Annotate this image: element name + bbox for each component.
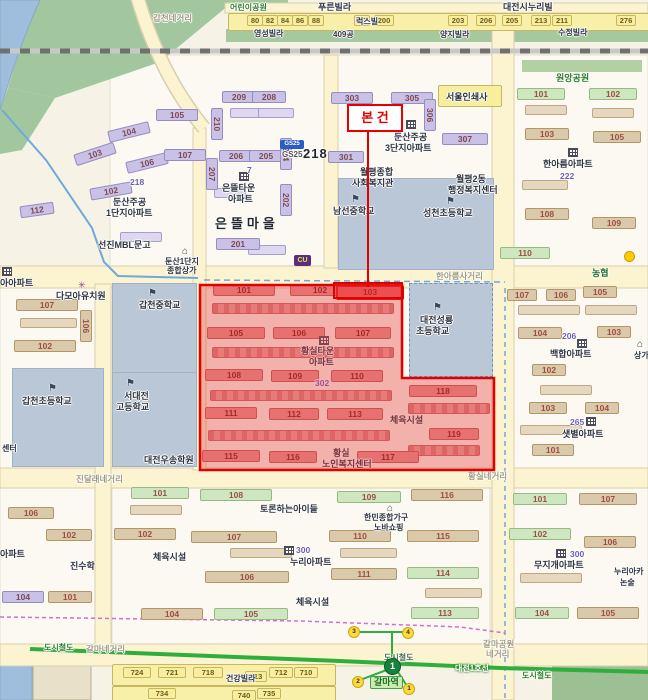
block: 104 xyxy=(141,608,203,620)
block: 112 xyxy=(269,408,319,420)
subway-exit-badge: 3 xyxy=(348,626,360,638)
building-bar xyxy=(258,108,294,118)
villa-label: 양지빌라 xyxy=(440,29,469,40)
subway-line1-badge: 1 xyxy=(384,658,401,675)
building-bar xyxy=(112,686,336,700)
lot-number: 86 xyxy=(292,15,308,26)
lot-number: 740 xyxy=(232,690,256,700)
block: 107 xyxy=(191,531,277,543)
cu-logo-icon: CU xyxy=(294,255,311,266)
block: 109 xyxy=(271,370,319,382)
poi-label: 논술 xyxy=(620,577,635,588)
block: 108 xyxy=(525,208,569,220)
shop-icon: ⌂ xyxy=(637,339,643,350)
block: 103 xyxy=(525,128,569,140)
block: 111 xyxy=(205,407,257,419)
villa-label: 영성빌라 xyxy=(254,28,283,39)
subject-block: 103 xyxy=(336,285,404,300)
park-label: 어린이공원 xyxy=(230,2,267,13)
block: 107 xyxy=(335,327,391,339)
block: 102 xyxy=(589,88,637,100)
map-canvas[interactable]: 어린이공원 푸른빌라 대전시누리빌 영성빌라 409공 럭스빌 양지빌라 수정빌… xyxy=(0,0,648,700)
block: 106 xyxy=(584,536,636,548)
block: 104 xyxy=(518,327,562,339)
school-flag-icon: ⚑ xyxy=(48,383,57,394)
poi-label: 대전우송학원 xyxy=(144,453,194,466)
block: 307 xyxy=(442,133,488,145)
villa-label: 푸른빌라 xyxy=(318,0,351,13)
block: 105 xyxy=(214,608,288,620)
block: 206 xyxy=(219,150,253,162)
block: 106 xyxy=(273,327,325,339)
block: 110 xyxy=(500,247,550,259)
block: 210 xyxy=(211,108,223,140)
lot-number: 265 xyxy=(570,417,584,427)
building-bar xyxy=(230,548,292,558)
block: 205 xyxy=(249,150,283,162)
block: 107 xyxy=(507,289,537,301)
poi-label: 선진MBL문고 xyxy=(98,238,151,251)
store-label: GS25 xyxy=(282,150,302,159)
building-bar xyxy=(130,505,182,515)
school-label: 갑천초등학교 xyxy=(22,394,72,407)
block: 114 xyxy=(407,567,479,579)
poi-label: 센터 xyxy=(2,443,17,454)
block: 118 xyxy=(409,385,477,397)
block: 107 xyxy=(579,493,637,505)
block: 202 xyxy=(280,184,292,216)
block: 102 xyxy=(46,529,92,541)
block: 102 xyxy=(114,528,176,540)
complex-name: 아아파트 xyxy=(0,276,33,289)
block: 105 xyxy=(577,607,639,619)
lot-label: 409공 xyxy=(333,29,354,40)
poi-label: 토론하는아이들 xyxy=(260,502,318,515)
poi-label: 서울인쇄사 xyxy=(446,90,487,103)
block: 113 xyxy=(327,408,383,420)
complex-name: 누리아파트 xyxy=(290,555,331,568)
building-bar xyxy=(518,305,580,315)
villa-label: 럭스빌 xyxy=(356,16,378,27)
block: 113 xyxy=(411,607,479,619)
road-name: 진달래네거리 xyxy=(76,473,123,485)
block: 109 xyxy=(337,491,401,503)
subway-line-name: 대전1호선 xyxy=(455,663,489,674)
lot-number: 7 xyxy=(247,165,252,175)
subject-marker: 본 건 xyxy=(347,104,403,132)
block: 303 xyxy=(331,92,373,104)
school-flag-icon: ⚑ xyxy=(126,378,135,389)
block: 101 xyxy=(48,591,92,603)
lot-number: 88 xyxy=(308,15,324,26)
road-name: 네거리 xyxy=(486,648,509,660)
block: 105 xyxy=(593,131,641,143)
apartment-icon xyxy=(568,148,578,157)
lot-number: 302 xyxy=(315,378,329,388)
lot-number: 710 xyxy=(294,667,318,678)
poi-label: 종합상가 xyxy=(167,265,196,276)
block: 107 xyxy=(164,149,206,161)
bank-block xyxy=(33,664,91,700)
block: 109 xyxy=(592,217,636,229)
block: 102 xyxy=(532,364,566,376)
lot-number: 721 xyxy=(158,667,186,678)
block: 105 xyxy=(156,109,198,121)
poi-label: 상가 xyxy=(634,350,648,361)
nonghyup-icon xyxy=(624,251,635,262)
poi-label: 농협 xyxy=(592,266,609,279)
lot-number: 735 xyxy=(257,688,281,699)
block: 103 xyxy=(597,326,631,338)
poi-label: 진수학 xyxy=(70,559,95,572)
villa-label: 수정빌라 xyxy=(558,27,587,38)
complex-name: 샛별아파트 xyxy=(562,427,603,440)
block: 101 xyxy=(513,493,567,505)
block: 103 xyxy=(529,402,567,414)
block: 101 xyxy=(517,88,565,100)
block: 106 xyxy=(80,310,92,342)
building-bar xyxy=(522,180,568,190)
building-bar xyxy=(210,390,392,401)
block: 101 xyxy=(131,487,189,499)
block: 201 xyxy=(216,238,260,250)
block: 104 xyxy=(585,402,619,414)
school-label: 갑천중학교 xyxy=(139,298,180,311)
lot-number: 205 xyxy=(502,15,522,26)
road-name: 한아름사거리 xyxy=(436,270,483,282)
block: 106 xyxy=(546,289,576,301)
rail-label: 도시철도 xyxy=(44,642,73,653)
block: 105 xyxy=(583,286,617,298)
building-bar xyxy=(20,318,77,328)
building-bar xyxy=(520,573,582,583)
poi-label: 체육시설 xyxy=(390,413,423,426)
lot-number: 734 xyxy=(148,688,176,699)
complex-name: 아파트 xyxy=(228,192,253,205)
lot-number: 84 xyxy=(277,15,293,26)
building-bar xyxy=(540,385,592,395)
poi-label: 누리아카 xyxy=(614,566,643,577)
lot-number: 222 xyxy=(560,171,574,181)
block: 106 xyxy=(8,507,54,519)
apartment-icon xyxy=(406,120,416,129)
apartment-icon xyxy=(556,549,566,558)
road-name: 갑천네거리 xyxy=(153,12,192,24)
apartment-icon xyxy=(586,417,596,426)
road-name: 황실네거리 xyxy=(468,470,507,482)
block: 110 xyxy=(331,370,383,382)
block: 102 xyxy=(14,340,76,352)
block: 108 xyxy=(205,369,263,381)
building-bar xyxy=(212,303,394,314)
lot-number: 203 xyxy=(448,15,468,26)
lot-number: 276 xyxy=(616,15,636,26)
park-label: 원앙공원 xyxy=(556,71,589,84)
poi-label: 행정복지센터 xyxy=(448,183,498,196)
school-label: 초등학교 xyxy=(416,324,449,337)
complex-name: 백합아파트 xyxy=(550,347,591,360)
complex-name: 아파트 xyxy=(309,355,334,368)
block: 102 xyxy=(509,528,571,540)
rail-label: 도시철도 xyxy=(522,670,551,681)
block: 106 xyxy=(205,571,289,583)
lot-number: 724 xyxy=(123,667,151,678)
lot-number: 206 xyxy=(476,15,496,26)
block: 115 xyxy=(407,530,479,542)
block: 101 xyxy=(532,444,574,456)
block: 209 xyxy=(222,91,256,103)
apartment-icon xyxy=(2,267,12,276)
block: 119 xyxy=(429,428,479,440)
building-bar xyxy=(525,105,567,115)
lot-number: 218 xyxy=(130,177,144,187)
school-label: 고등학교 xyxy=(116,400,149,413)
block: 306 xyxy=(424,99,436,131)
subway-station-label: 갈마역 xyxy=(370,676,403,689)
block: 111 xyxy=(331,568,397,580)
block: 108 xyxy=(200,489,272,501)
complex-name: 무지개아파트 xyxy=(534,558,584,571)
lot-number: 82 xyxy=(262,15,278,26)
lot-number: 211 xyxy=(552,15,572,26)
block: 104 xyxy=(515,607,569,619)
block: 101 xyxy=(213,284,275,296)
building-bar xyxy=(592,108,634,118)
lot-number: 80 xyxy=(247,15,263,26)
lot-number: 712 xyxy=(269,667,293,678)
poi-label: 사회복지관 xyxy=(352,176,393,189)
block: 116 xyxy=(411,489,483,501)
school-label: 성천초등학교 xyxy=(423,206,473,219)
district-number: 218 xyxy=(303,146,328,161)
village-name: 은뜰마을 xyxy=(215,213,279,232)
complex-name: 3단지아파트 xyxy=(385,141,431,154)
building-bar xyxy=(425,588,482,598)
block: 105 xyxy=(207,327,265,339)
complex-name: 1단지아파트 xyxy=(106,206,152,219)
subway-exit-badge: 1 xyxy=(403,683,415,695)
poi-label: 노바쇼핑 xyxy=(374,522,403,533)
villa-label: 대전시누리빌 xyxy=(503,0,553,13)
poi-label: 노인복지센터 xyxy=(322,457,372,470)
subway-exit-badge: 2 xyxy=(352,676,364,688)
complex-name: 한아름아파트 xyxy=(543,157,593,170)
block: 301 xyxy=(328,151,364,163)
subway-exit-badge: 4 xyxy=(402,627,414,639)
apartment-icon xyxy=(284,546,294,555)
villa-label: 건강빌라 xyxy=(226,673,255,684)
poi-label: 체육시설 xyxy=(296,595,329,608)
lot-number: 206 xyxy=(562,331,576,341)
building-bar xyxy=(208,430,390,441)
school-grounds-gapcheon-elementary xyxy=(12,368,104,467)
building-bar xyxy=(340,548,397,558)
school-label: 남선중학교 xyxy=(333,204,374,217)
block: 208 xyxy=(252,91,286,103)
block: 115 xyxy=(202,450,260,462)
lot-number: 300 xyxy=(296,545,310,555)
lot-number: 718 xyxy=(193,667,223,678)
poi-label: 다모아유치원 xyxy=(56,289,106,302)
road-name: 갈마네거리 xyxy=(86,643,125,655)
lot-number: 213 xyxy=(531,15,551,26)
building-bar xyxy=(585,305,637,315)
block: 116 xyxy=(269,451,317,463)
block: 104 xyxy=(2,591,44,603)
block: 207 xyxy=(206,158,218,190)
poi-label: 체육시설 xyxy=(153,550,186,563)
school-flag-icon: ⚑ xyxy=(433,302,442,313)
complex-name: 아파트 xyxy=(0,547,25,560)
gs25-logo-icon: GS25 xyxy=(280,140,304,149)
